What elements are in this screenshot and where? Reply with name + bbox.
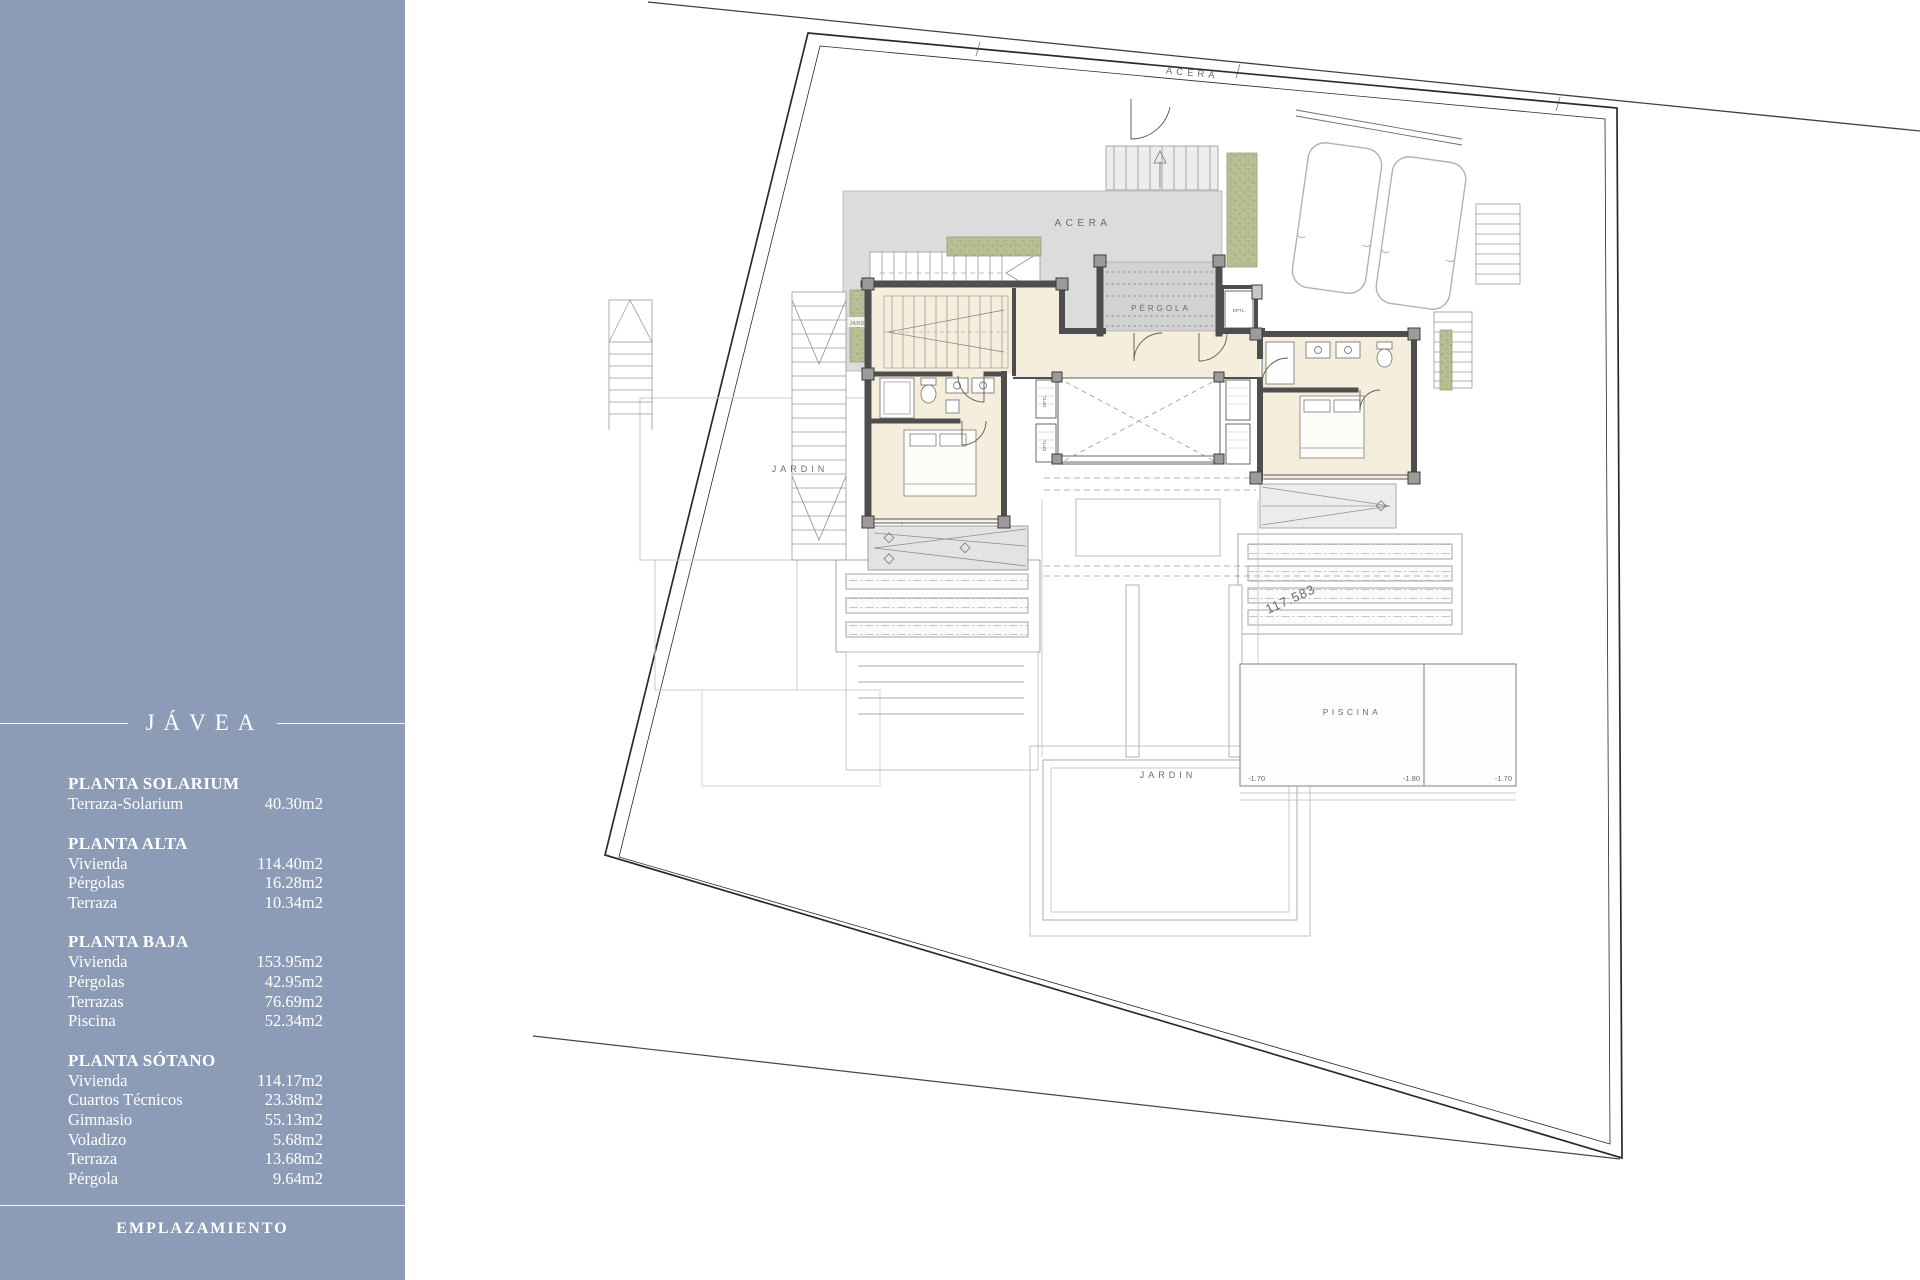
area-row: Vivienda 114.17m2 — [68, 1071, 323, 1091]
parking-cars — [1290, 141, 1468, 312]
closet-right-a — [1226, 380, 1250, 420]
sink — [972, 378, 994, 393]
section-planta-sotano: PLANTA SÓTANO Vivienda 114.17m2 Cuartos … — [68, 1051, 323, 1189]
area-value: 5.68m2 — [273, 1130, 323, 1150]
deck-right — [1238, 534, 1462, 634]
area-row: Voladizo 5.68m2 — [68, 1130, 323, 1150]
toilet — [1377, 349, 1392, 367]
info-sidebar: JÁVEA PLANTA SOLARIUM Terraza-Solarium 4… — [0, 0, 405, 1280]
area-value: 114.17m2 — [257, 1071, 323, 1091]
area-label: Cuartos Técnicos — [68, 1090, 183, 1110]
closet-entry-label: DPTL. — [1233, 308, 1246, 313]
area-value: 114.40m2 — [257, 854, 323, 874]
project-title-row: JÁVEA — [0, 710, 405, 736]
presentation-sheet: ACERA ACERA PÉRGOLA JARDIN JARDIN JARD. … — [0, 0, 1920, 1280]
area-row: Terraza 13.68m2 — [68, 1149, 323, 1169]
area-value: 9.64m2 — [273, 1169, 323, 1189]
jard-small-label: JARD. — [850, 321, 867, 327]
sink — [1336, 342, 1360, 358]
area-label: Terrazas — [68, 992, 124, 1012]
section-planta-baja: PLANTA BAJA Vivienda 153.95m2 Pérgolas 4… — [68, 932, 323, 1030]
sheet-name: EMPLAZAMIENTO — [0, 1220, 405, 1238]
section-planta-alta: PLANTA ALTA Vivienda 114.40m2 Pérgolas 1… — [68, 834, 323, 913]
terrace-left-glassfold — [868, 526, 1028, 570]
pool — [1240, 664, 1516, 800]
terrace-right-glassfold — [1260, 484, 1396, 528]
section-planta-solarium: PLANTA SOLARIUM Terraza-Solarium 40.30m2 — [68, 774, 323, 814]
section-title: PLANTA SOLARIUM — [68, 774, 323, 794]
area-schedule: PLANTA SOLARIUM Terraza-Solarium 40.30m2… — [68, 774, 323, 1208]
closet-right-b — [1226, 424, 1250, 464]
section-title: PLANTA SÓTANO — [68, 1051, 323, 1071]
area-row: Terraza-Solarium 40.30m2 — [68, 794, 323, 814]
acera-walk-label: ACERA — [1055, 218, 1112, 229]
shower — [1266, 342, 1294, 384]
sink — [946, 378, 968, 393]
pool-level-left: -1.70 — [1248, 774, 1265, 783]
area-value: 153.95m2 — [257, 952, 323, 972]
footer-divider — [0, 1205, 405, 1206]
project-title: JÁVEA — [146, 710, 264, 736]
area-value: 52.34m2 — [265, 1011, 323, 1031]
area-row: Vivienda 114.40m2 — [68, 854, 323, 874]
area-label: Voladizo — [68, 1130, 126, 1150]
area-row: Vivienda 153.95m2 — [68, 952, 323, 972]
area-label: Piscina — [68, 1011, 116, 1031]
area-row: Piscina 52.34m2 — [68, 1011, 323, 1031]
area-row: Cuartos Técnicos 23.38m2 — [68, 1090, 323, 1110]
toilet-tank — [1377, 342, 1392, 349]
planter-top-left — [947, 237, 1041, 256]
garden-stair-left — [792, 292, 846, 560]
area-label: Terraza-Solarium — [68, 794, 183, 814]
area-row: Terrazas 76.69m2 — [68, 992, 323, 1012]
title-rule-right — [277, 723, 405, 724]
deck-left — [836, 560, 1040, 652]
car-outline — [1374, 155, 1468, 312]
area-label: Vivienda — [68, 952, 128, 972]
area-label: Vivienda — [68, 854, 128, 874]
piscina-label: PISCINA — [1323, 707, 1382, 717]
void-double-height — [1058, 378, 1220, 464]
area-value: 13.68m2 — [265, 1149, 323, 1169]
area-value: 10.34m2 — [265, 893, 323, 913]
entry-stair-top — [1106, 146, 1218, 190]
landing-stair-far-left — [609, 300, 652, 430]
area-value: 42.95m2 — [265, 972, 323, 992]
planter-right-b — [1440, 330, 1452, 390]
closet-hall-upper-label: DPTL. — [1042, 395, 1047, 408]
area-label: Pérgolas — [68, 873, 125, 893]
pergola-label: PÉRGOLA — [1131, 304, 1191, 313]
section-title: PLANTA BAJA — [68, 932, 323, 952]
garden-steps-bottom — [846, 652, 1038, 770]
pool-level-right: -1.70 — [1495, 774, 1512, 783]
street-lines — [648, 2, 1920, 145]
pergola-area — [1103, 262, 1219, 331]
toilet-tank — [921, 378, 936, 385]
toilet — [921, 385, 936, 403]
stair-room — [872, 284, 1014, 374]
area-row: Gimnasio 55.13m2 — [68, 1110, 323, 1130]
area-label: Vivienda — [68, 1071, 128, 1091]
area-label: Pérgola — [68, 1169, 118, 1189]
section-title: PLANTA ALTA — [68, 834, 323, 854]
area-row: Pérgolas 16.28m2 — [68, 873, 323, 893]
area-label: Terraza — [68, 893, 117, 913]
area-value: 16.28m2 — [265, 873, 323, 893]
area-row: Terraza 10.34m2 — [68, 893, 323, 913]
area-label: Gimnasio — [68, 1110, 132, 1130]
bed-right — [1300, 396, 1364, 458]
area-row: Pérgola 9.64m2 — [68, 1169, 323, 1189]
planter-vertical-center — [1227, 153, 1257, 267]
sink — [1306, 342, 1330, 358]
area-value: 55.13m2 — [265, 1110, 323, 1130]
area-value: 23.38m2 — [265, 1090, 323, 1110]
jardin-bottom-label: JARDIN — [1140, 770, 1197, 780]
bed-left — [904, 430, 976, 496]
title-rule-left — [0, 723, 128, 724]
area-value: 76.69m2 — [265, 992, 323, 1012]
closet-hall-lower-label: DPTL. — [1042, 439, 1047, 452]
area-row: Pérgolas 42.95m2 — [68, 972, 323, 992]
pool-level-mid: -1.80 — [1403, 774, 1420, 783]
area-label: Pérgolas — [68, 972, 125, 992]
jardin-left-label: JARDIN — [772, 464, 829, 474]
stair-right-upper — [1476, 204, 1520, 284]
area-value: 40.30m2 — [265, 794, 323, 814]
car-outline — [1290, 141, 1384, 296]
area-label: Terraza — [68, 1149, 117, 1169]
